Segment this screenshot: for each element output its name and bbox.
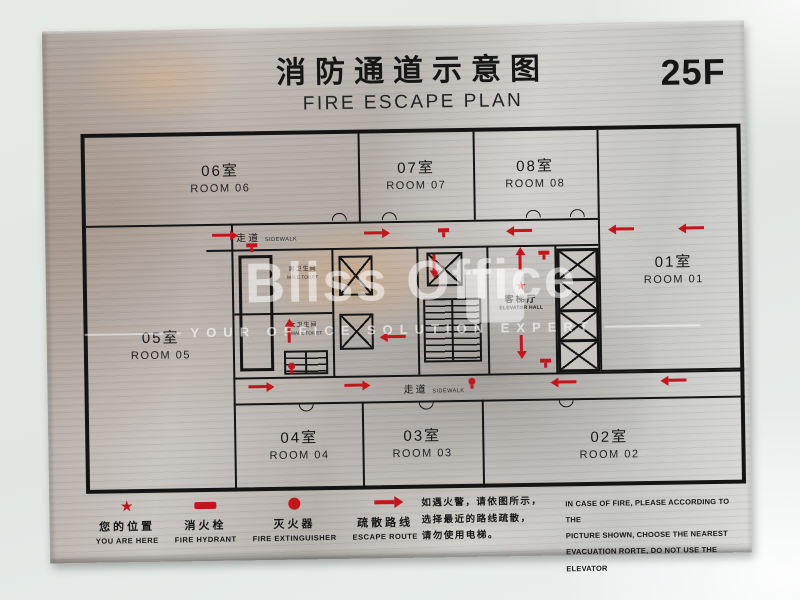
corridor-label-cn: 走道 bbox=[403, 385, 427, 396]
fire-extinguisher-icon bbox=[288, 498, 300, 510]
escape-route-arrow bbox=[686, 226, 704, 229]
watermark-brand: Bliss Office bbox=[185, 244, 636, 316]
room-06: 06室 ROOM 06 bbox=[145, 159, 296, 196]
fire-hydrant-marker bbox=[246, 243, 257, 247]
floor-number: 25F bbox=[660, 51, 726, 94]
escape-route-arrow bbox=[344, 384, 362, 387]
legend-item-escape-route: 疏散路线 ESCAPE ROUTE bbox=[352, 494, 418, 542]
legend-item-fire-extinguisher: 灭火器 FIRE EXTINGUISHER bbox=[252, 495, 337, 543]
door-arc bbox=[299, 403, 314, 411]
notice-en-line: PICTURE SHOWN, CHOOSE THE NEAREST bbox=[566, 526, 746, 545]
corridor-label-en: SIDEWALK bbox=[432, 388, 464, 395]
escape-route-arrow bbox=[248, 385, 266, 388]
legend-label-cn: 疏散路线 bbox=[352, 514, 417, 531]
fire-escape-plan-sign: 消防通道示意图 FIRE ESCAPE PLAN 25F 06室 RO bbox=[42, 21, 752, 564]
escape-route-arrow bbox=[616, 227, 634, 230]
door-arc bbox=[570, 209, 585, 217]
wall bbox=[472, 132, 475, 220]
title-english: FIRE ESCAPE PLAN bbox=[233, 89, 593, 117]
room-02-label-en: ROOM 02 bbox=[529, 447, 689, 462]
corridor-label-en: SIDEWALK bbox=[265, 237, 297, 244]
watermark-rule-right bbox=[605, 324, 701, 328]
fire-hydrant-icon bbox=[194, 501, 216, 508]
fire-hydrant-marker bbox=[540, 359, 551, 363]
room-02-label-cn: 02室 bbox=[529, 424, 689, 448]
room-02: 02室 ROOM 02 bbox=[529, 424, 690, 462]
door-arc bbox=[559, 399, 574, 407]
room-07-label-en: ROOM 07 bbox=[363, 179, 469, 193]
watermark-rule-left bbox=[85, 332, 181, 336]
legend-label-cn: 消火栓 bbox=[174, 517, 236, 534]
room-08-label-en: ROOM 08 bbox=[477, 177, 593, 191]
legend-label-en: FIRE EXTINGUISHER bbox=[253, 533, 337, 543]
title-chinese: 消防通道示意图 bbox=[232, 43, 593, 93]
legend-label-cn: 灭火器 bbox=[252, 515, 336, 532]
room-03-label-cn: 03室 bbox=[366, 424, 478, 447]
legend-label-en: FIRE HYDRANT bbox=[175, 535, 237, 545]
room-08-label-cn: 08室 bbox=[477, 154, 593, 177]
room-07: 07室 ROOM 07 bbox=[363, 156, 470, 193]
escape-route-arrow bbox=[364, 231, 382, 234]
legend-label-en: YOU ARE HERE bbox=[96, 536, 159, 546]
door-arc bbox=[332, 213, 347, 221]
legend-item-you-are-here: ★ 您的位置 YOU ARE HERE bbox=[95, 498, 159, 546]
room-04-label-cn: 04室 bbox=[239, 426, 359, 449]
escape-route-arrow bbox=[520, 335, 523, 351]
door-arc bbox=[419, 401, 434, 409]
door-arc bbox=[382, 212, 397, 220]
star-icon: ★ bbox=[120, 499, 134, 514]
room-03: 03室 ROOM 03 bbox=[366, 424, 479, 461]
bottom-corridor-label: 走道 SIDEWALK bbox=[403, 380, 464, 396]
escape-route-arrow bbox=[668, 378, 686, 381]
elevator-cab bbox=[561, 342, 597, 370]
escape-route-arrow bbox=[212, 234, 230, 237]
legend: ★ 您的位置 YOU ARE HERE 消火栓 FIRE HYDRANT 灭火器… bbox=[95, 494, 418, 546]
sign-title: 消防通道示意图 FIRE ESCAPE PLAN bbox=[232, 43, 593, 117]
legend-label-en: ESCAPE ROUTE bbox=[353, 532, 418, 542]
wall bbox=[358, 134, 361, 222]
fire-notice-chinese: 如遇火警，请依图所示， 选择最近的路线疏散， 请勿使用电梯。 bbox=[421, 493, 564, 545]
legend-label-cn: 您的位置 bbox=[96, 518, 159, 535]
room-06-label-cn: 06室 bbox=[145, 159, 295, 182]
fire-notice-english: IN CASE OF FIRE, PLEASE ACCORDING TO THE… bbox=[565, 494, 746, 577]
fire-extinguisher-marker bbox=[288, 363, 295, 370]
room-06-label-en: ROOM 06 bbox=[145, 182, 295, 196]
wall bbox=[482, 400, 485, 488]
room-03-label-en: ROOM 03 bbox=[366, 447, 478, 461]
room-07-label-cn: 07室 bbox=[363, 156, 469, 179]
escape-route-arrow bbox=[558, 380, 576, 383]
escape-route-arrow-icon bbox=[375, 500, 395, 504]
room-04: 04室 ROOM 04 bbox=[239, 426, 360, 463]
escape-route-arrow bbox=[514, 229, 532, 232]
room-05-label-en: ROOM 05 bbox=[96, 349, 226, 363]
wall bbox=[362, 402, 365, 490]
room-08: 08室 ROOM 08 bbox=[477, 154, 594, 191]
top-corridor-label: 走道 SIDEWALK bbox=[236, 229, 297, 245]
door-arc bbox=[526, 210, 541, 218]
notice-en-line: IN CASE OF FIRE, PLEASE ACCORDING TO THE bbox=[565, 494, 745, 529]
legend-item-fire-hydrant: 消火栓 FIRE HYDRANT bbox=[174, 497, 237, 545]
notice-cn-line: 如遇火警，请依图所示， bbox=[421, 493, 563, 512]
notice-cn-line: 请勿使用电梯。 bbox=[422, 527, 564, 546]
fire-extinguisher-marker bbox=[468, 378, 475, 385]
notice-en-line: EVACUATION RORTE, DO NOT USE THE ELEVATO… bbox=[566, 542, 746, 577]
fire-hydrant-marker bbox=[438, 228, 449, 232]
room-04-label-en: ROOM 04 bbox=[239, 449, 359, 463]
